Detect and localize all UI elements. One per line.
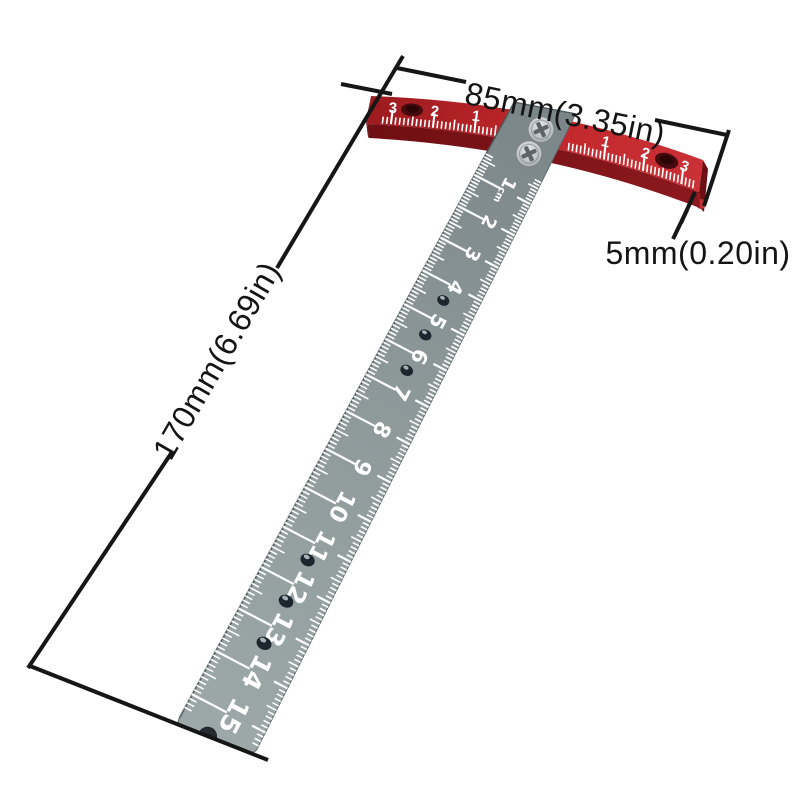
head-tick [437, 121, 438, 128]
head-tick [429, 120, 430, 127]
head-tick [658, 168, 659, 176]
head-tick [487, 127, 488, 134]
head-tick [491, 128, 492, 135]
head-tick [616, 155, 617, 163]
head-tick [608, 153, 609, 161]
head-tick [483, 127, 484, 134]
head-tick [416, 119, 417, 126]
head-tick [635, 161, 636, 169]
thickness-dimension-label: 5mm(0.20in) [605, 235, 790, 271]
product-photo-t-square: 321123 1cm23456789101112131415 85mm(3.35… [0, 0, 800, 800]
head-tick [651, 166, 652, 174]
head-tick [685, 178, 686, 186]
head-tick [627, 158, 628, 166]
head-tick [674, 173, 675, 181]
head-tick [478, 126, 479, 133]
head-tick [462, 124, 463, 131]
head-tick [425, 120, 426, 127]
head-tick [592, 149, 593, 157]
head-tick [580, 146, 581, 154]
head-tick [445, 122, 446, 129]
head-tick [612, 154, 613, 162]
head-tick [666, 171, 667, 179]
length-dim-line-bottom [28, 452, 172, 668]
head-tick [631, 160, 632, 168]
head-tick [689, 179, 690, 187]
head-tick [576, 145, 577, 153]
head-tick [693, 180, 694, 188]
head-tick [588, 148, 589, 156]
head-tick [655, 167, 656, 175]
head-tick [399, 118, 400, 125]
head-tick [420, 119, 421, 126]
head-tick [458, 123, 459, 130]
length-dim-line-top [277, 56, 403, 268]
thickness-witness-line [704, 130, 729, 206]
head-tick [568, 143, 569, 151]
t-square-render: 321123 1cm23456789101112131415 85mm(3.35… [0, 0, 800, 800]
head-tick [600, 151, 601, 159]
head-tick [466, 124, 467, 131]
head-tick [441, 121, 442, 128]
head-tick [387, 117, 388, 124]
head-tick [639, 162, 640, 170]
head-tick [403, 118, 404, 125]
tsquare-blade: 1cm23456789101112131415 [173, 81, 586, 768]
head-tick [620, 156, 621, 164]
head-scale-number: 3 [388, 100, 397, 117]
width-dim-line-left [397, 68, 466, 82]
head-tick [382, 117, 383, 124]
head-scale-number: 2 [430, 103, 440, 121]
head-tick [408, 118, 409, 125]
head-tick [470, 125, 471, 132]
head-tick [572, 144, 573, 152]
head-tick [596, 150, 597, 158]
head-tick [450, 122, 451, 129]
head-tick [395, 117, 396, 124]
length-dimension-label: 170mm(6.69in) [145, 255, 287, 465]
head-tick [678, 175, 679, 183]
head-tick [670, 172, 671, 180]
head-tick [647, 164, 648, 172]
head-tick [584, 143, 585, 154]
